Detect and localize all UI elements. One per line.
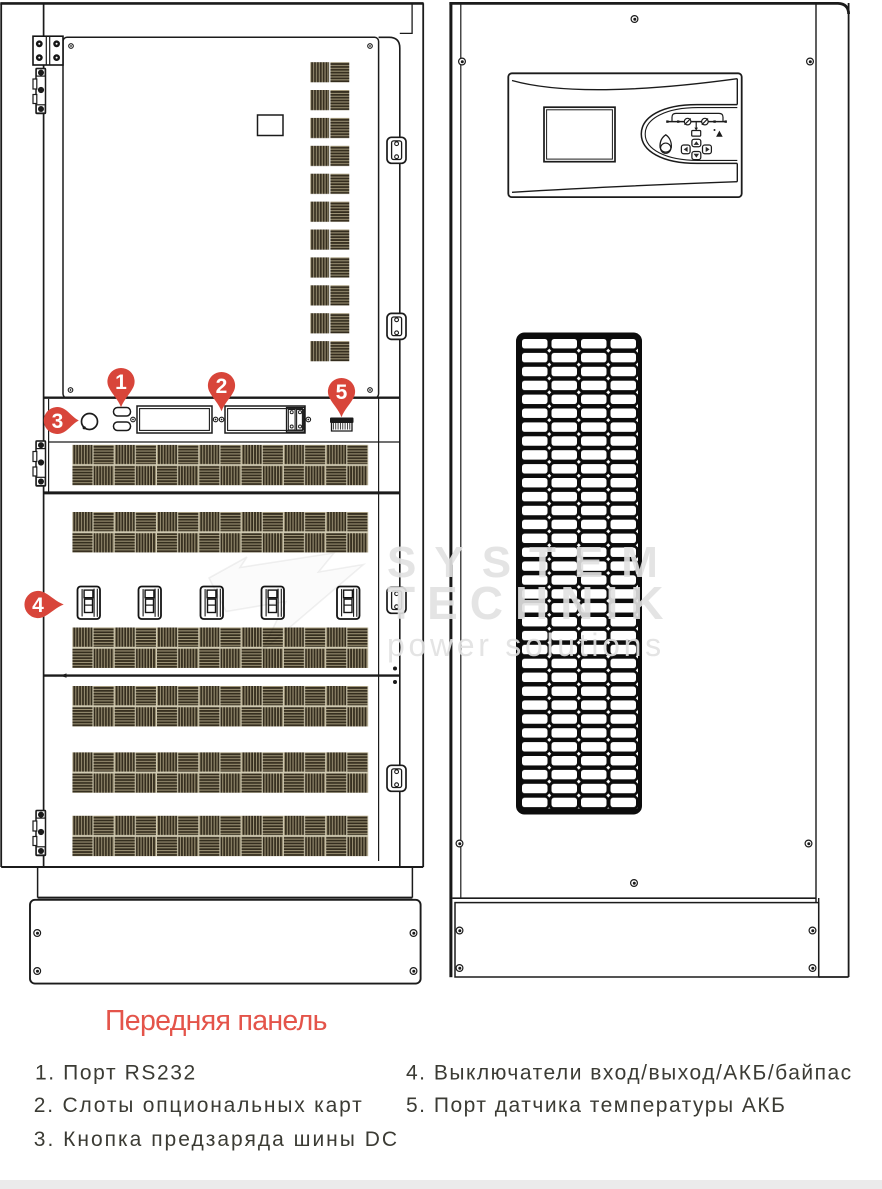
svg-text:Передняя панель: Передняя панель [105,1005,327,1037]
svg-text:2. Слоты опциональных карт: 2. Слоты опциональных карт [34,1094,364,1117]
svg-text:3. Кнопка предзаряда шины DC: 3. Кнопка предзаряда шины DC [34,1128,399,1151]
svg-text:2: 2 [216,375,228,398]
svg-text:4: 4 [32,594,44,617]
svg-text:1: 1 [115,371,127,394]
svg-text:3: 3 [52,410,64,433]
svg-text:4. Выключатели вход/выход/АКБ/: 4. Выключатели вход/выход/АКБ/байпас [406,1062,853,1085]
svg-text:1. Порт RS232: 1. Порт RS232 [35,1062,197,1085]
svg-text:TECHNIK: TECHNIK [387,577,675,629]
svg-text:5: 5 [336,381,348,404]
svg-text:power solutions: power solutions [387,627,665,663]
svg-text:5. Порт датчика температуры АК: 5. Порт датчика температуры АКБ [406,1094,786,1117]
